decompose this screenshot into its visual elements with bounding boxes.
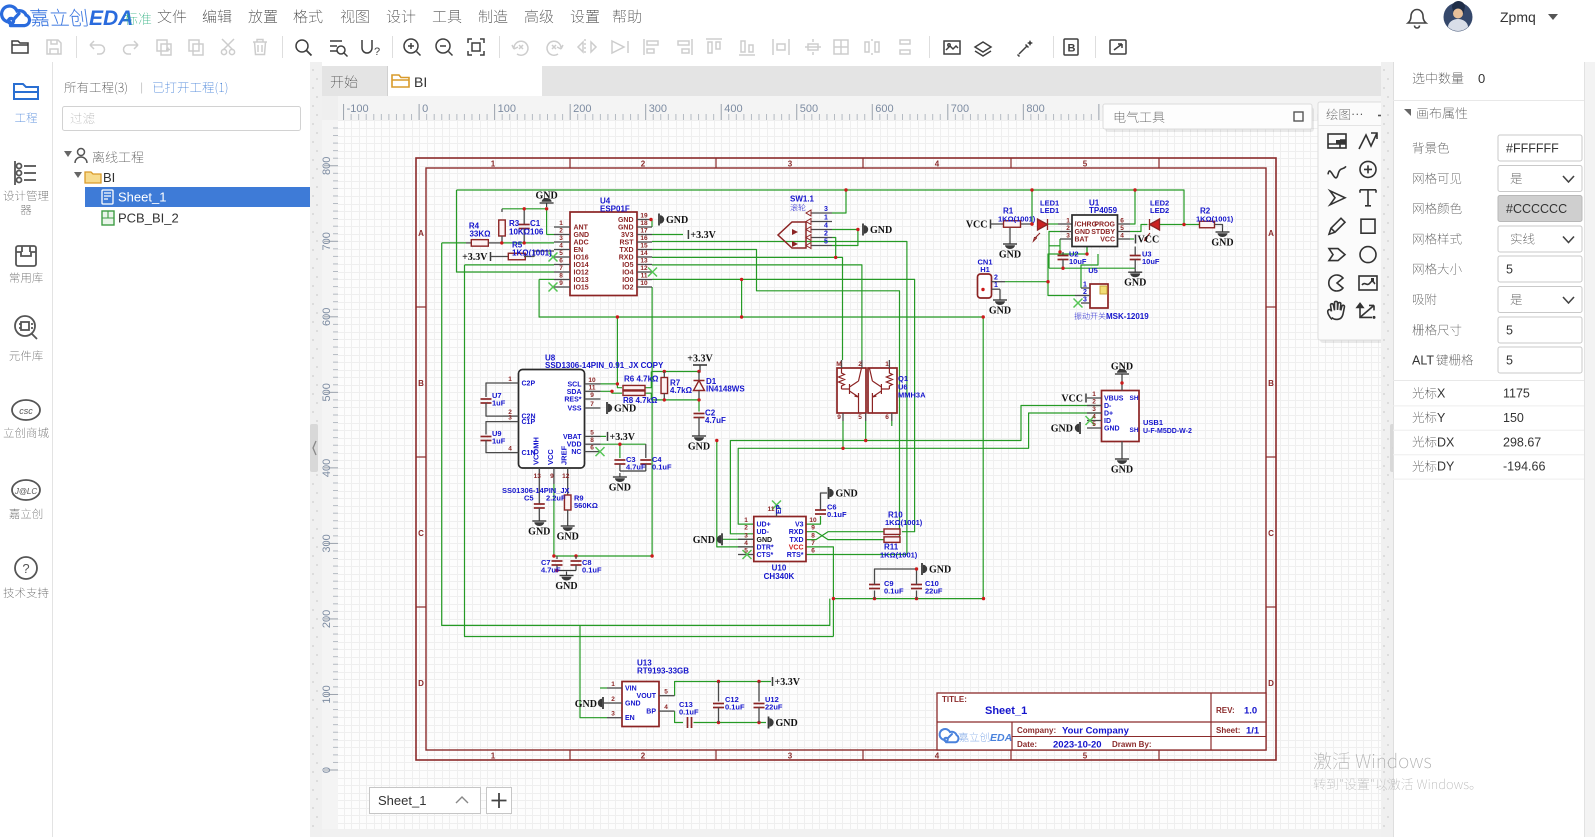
svg-text:SH: SH [1129, 395, 1138, 402]
svg-text:VCC: VCC [1061, 394, 1083, 405]
svg-text:700: 700 [951, 103, 969, 115]
svg-text:22uF: 22uF [925, 587, 943, 596]
svg-text:U5: U5 [1088, 266, 1098, 275]
svg-text:D+: D+ [1104, 411, 1113, 418]
svg-text:V3: V3 [795, 522, 804, 529]
svg-text:IO4: IO4 [622, 270, 633, 277]
svg-text:14: 14 [640, 250, 648, 257]
svg-text:6: 6 [559, 258, 563, 265]
svg-text:7: 7 [811, 540, 815, 547]
svg-text:+3.3V: +3.3V [775, 677, 801, 688]
svg-text:GND: GND [528, 527, 550, 538]
svg-text:SH: SH [1129, 427, 1138, 434]
svg-text:GND: GND [614, 404, 636, 415]
svg-text:GND: GND [618, 225, 634, 232]
svg-text:VCC: VCC [789, 544, 804, 551]
svg-text:GND: GND [1211, 238, 1233, 249]
svg-text:6: 6 [885, 414, 889, 421]
svg-text:2: 2 [744, 525, 748, 532]
svg-text:EP: EP [776, 504, 783, 514]
svg-text:RXD: RXD [619, 255, 634, 262]
svg-text:VDD: VDD [567, 442, 582, 449]
svg-text:1uF: 1uF [492, 399, 506, 408]
svg-text:4: 4 [1120, 233, 1124, 240]
svg-text:PCB_BI_2: PCB_BI_2 [118, 211, 179, 226]
svg-text:Your Company: Your Company [1062, 726, 1130, 737]
svg-text:MMH3A: MMH3A [898, 391, 926, 400]
svg-text:GND: GND [557, 532, 579, 543]
svg-text:5: 5 [590, 429, 594, 436]
svg-text:|: | [140, 80, 143, 94]
svg-text:4: 4 [824, 223, 828, 230]
svg-text:VIN: VIN [625, 686, 637, 693]
svg-text:4: 4 [508, 446, 512, 453]
svg-text:19: 19 [640, 213, 648, 220]
svg-text:-100: -100 [347, 103, 369, 115]
svg-text:GND: GND [999, 250, 1021, 261]
svg-text:17: 17 [640, 228, 648, 235]
svg-text:2023-10-20: 2023-10-20 [1053, 740, 1102, 751]
svg-text:VCC: VCC [966, 220, 988, 231]
svg-text:1KΩ(1001): 1KΩ(1001) [998, 215, 1036, 224]
svg-text:3: 3 [1092, 406, 1096, 413]
svg-text:5: 5 [1506, 324, 1513, 338]
svg-text:IO2: IO2 [622, 285, 633, 292]
svg-text:2: 2 [994, 275, 998, 282]
svg-text:?: ? [22, 561, 29, 576]
svg-text:5: 5 [1506, 354, 1513, 368]
svg-text:11: 11 [641, 273, 648, 280]
svg-text:PROG: PROG [1094, 222, 1115, 229]
svg-text:1KΩ(1001): 1KΩ(1001) [880, 551, 918, 560]
svg-text:Sheet_1: Sheet_1 [985, 705, 1027, 717]
svg-text:C1P: C1P [522, 419, 536, 426]
svg-text:10KΩ: 10KΩ [509, 228, 531, 237]
svg-text:GND: GND [666, 215, 688, 226]
svg-text:0: 0 [1478, 71, 1485, 86]
svg-text:106: 106 [530, 228, 544, 237]
svg-text:SDA: SDA [567, 389, 582, 396]
svg-text:csc: csc [19, 406, 33, 416]
svg-text:Sheet_1: Sheet_1 [118, 190, 166, 205]
svg-text:STDBY: STDBY [1091, 229, 1115, 236]
svg-text:USB1: USB1 [1143, 418, 1163, 427]
svg-text:1: 1 [994, 282, 998, 289]
svg-text:298.67: 298.67 [1503, 435, 1541, 449]
svg-text:560KΩ: 560KΩ [574, 501, 598, 510]
svg-text:MSK-12019: MSK-12019 [1106, 312, 1149, 321]
svg-text:2: 2 [858, 361, 862, 368]
svg-text:#CCCCCC: #CCCCCC [1506, 202, 1567, 216]
svg-text:GND: GND [1111, 362, 1133, 373]
svg-text:10uF: 10uF [1142, 257, 1160, 266]
svg-text:EDA: EDA [89, 7, 133, 30]
svg-text:EN: EN [574, 247, 584, 254]
svg-text:UD-: UD- [757, 529, 770, 536]
svg-text:12: 12 [562, 473, 570, 480]
svg-text:IO12: IO12 [574, 270, 589, 277]
svg-text:150: 150 [1503, 411, 1524, 425]
svg-text:0.1uF: 0.1uF [582, 566, 602, 575]
svg-text:3: 3 [788, 752, 793, 761]
svg-text:3: 3 [788, 160, 793, 169]
svg-text:M: M [836, 361, 841, 368]
svg-text:22uF: 22uF [765, 703, 783, 712]
svg-text:DX: DX [1437, 435, 1455, 449]
svg-text:VCC: VCC [1100, 237, 1115, 244]
svg-text:IO14: IO14 [574, 262, 589, 269]
svg-text:1: 1 [744, 517, 748, 524]
svg-text:3: 3 [508, 415, 512, 422]
svg-text:UD+: UD+ [757, 522, 771, 529]
svg-text:1: 1 [1092, 391, 1096, 398]
svg-text:DTR*: DTR* [757, 544, 774, 551]
svg-text:GND: GND [1051, 424, 1073, 435]
svg-text:3: 3 [611, 711, 615, 718]
svg-text:GND: GND [1104, 426, 1120, 433]
svg-text:Sheet:: Sheet: [1216, 726, 1240, 735]
svg-text:11: 11 [589, 384, 596, 391]
svg-text:4: 4 [559, 243, 563, 250]
svg-text:12: 12 [640, 265, 648, 272]
svg-text:600: 600 [321, 308, 333, 326]
svg-text:400: 400 [724, 103, 742, 115]
svg-text:VBUS: VBUS [1104, 396, 1124, 403]
svg-text:0.1uF: 0.1uF [679, 708, 699, 717]
svg-text:#FFFFFF: #FFFFFF [1506, 142, 1559, 156]
svg-text:RTS*: RTS* [787, 552, 804, 559]
svg-text:3: 3 [559, 235, 563, 242]
svg-text:Date:: Date: [1017, 740, 1037, 749]
svg-text:LED2: LED2 [1150, 206, 1169, 215]
svg-text:16: 16 [640, 235, 648, 242]
svg-text:J@LC: J@LC [14, 487, 38, 496]
svg-text:GND: GND [757, 537, 773, 544]
svg-text:10: 10 [809, 517, 817, 524]
svg-text:4: 4 [935, 752, 940, 761]
svg-text:8: 8 [559, 273, 563, 280]
svg-text:100: 100 [498, 103, 516, 115]
svg-text:10: 10 [640, 280, 648, 287]
svg-text:GND: GND [989, 306, 1011, 317]
svg-text:R6 4.7kΩ: R6 4.7kΩ [624, 375, 659, 384]
svg-text:+3.3V: +3.3V [687, 354, 713, 365]
svg-text:C5: C5 [524, 494, 534, 503]
svg-text:1: 1 [885, 361, 889, 368]
svg-text:9: 9 [559, 280, 563, 287]
svg-text:1KΩ(1001): 1KΩ(1001) [512, 249, 552, 258]
svg-text:4.7kΩ: 4.7kΩ [670, 386, 693, 395]
svg-text:+3.3V: +3.3V [462, 252, 488, 263]
svg-text:3: 3 [744, 532, 748, 539]
svg-text:1175: 1175 [1503, 387, 1530, 401]
svg-text:EN: EN [625, 715, 635, 722]
svg-text:B: B [1068, 43, 1076, 55]
svg-text:LED1: LED1 [1040, 206, 1059, 215]
svg-text:VCC: VCC [1138, 235, 1160, 246]
svg-text:ADC: ADC [574, 240, 589, 247]
svg-text:1uF: 1uF [492, 437, 506, 446]
svg-text:4: 4 [1092, 414, 1096, 421]
svg-text:?: ? [374, 46, 380, 58]
svg-text:GND: GND [693, 535, 715, 546]
svg-text:Drawn By:: Drawn By: [1112, 740, 1152, 749]
svg-text:7: 7 [590, 401, 594, 408]
svg-text:8: 8 [811, 532, 815, 539]
svg-text:5: 5 [744, 548, 748, 555]
svg-text:GND: GND [574, 232, 590, 239]
svg-text:800: 800 [1026, 103, 1044, 115]
svg-text:NC: NC [571, 449, 581, 456]
svg-text:0.1uF: 0.1uF [652, 463, 672, 472]
svg-text:4: 4 [664, 704, 668, 711]
svg-text:REV:: REV: [1216, 706, 1235, 715]
svg-text:IO0: IO0 [622, 277, 633, 284]
svg-text:2: 2 [611, 696, 615, 703]
svg-text:10uF: 10uF [1069, 257, 1087, 266]
svg-text:4.7uF: 4.7uF [705, 416, 726, 425]
svg-text:5: 5 [559, 250, 563, 257]
svg-text:4.7uF: 4.7uF [626, 463, 646, 472]
svg-text:GND: GND [609, 483, 631, 494]
svg-text:TXD: TXD [790, 537, 804, 544]
svg-text:9: 9 [590, 392, 594, 399]
svg-text:GND: GND [575, 699, 597, 710]
svg-text:5: 5 [1506, 263, 1513, 277]
svg-text:6: 6 [1120, 218, 1124, 225]
svg-text:RXD: RXD [789, 529, 804, 536]
svg-text:3: 3 [824, 206, 828, 213]
svg-text:SW1.1: SW1.1 [790, 195, 815, 204]
svg-text:C2P: C2P [522, 381, 536, 388]
svg-text:BI: BI [414, 74, 427, 90]
svg-text:600: 600 [875, 103, 893, 115]
svg-text:800: 800 [321, 157, 333, 175]
svg-text:1KΩ(1001): 1KΩ(1001) [1196, 215, 1234, 224]
svg-text:2.2uF: 2.2uF [546, 494, 566, 503]
svg-text:GND: GND [1124, 278, 1146, 289]
svg-text:400: 400 [321, 459, 333, 477]
svg-text:5: 5 [1120, 225, 1124, 232]
svg-text:R8 4.7kΩ: R8 4.7kΩ [623, 396, 658, 405]
svg-text:4.7uF: 4.7uF [541, 566, 561, 575]
svg-text:Sheet_1: Sheet_1 [378, 793, 426, 808]
svg-text:RST: RST [620, 240, 635, 247]
svg-text:1: 1 [611, 681, 615, 688]
svg-text:EDA: EDA [990, 732, 1012, 744]
svg-text:BAT: BAT [1075, 237, 1090, 244]
svg-text:6: 6 [590, 445, 594, 452]
svg-text:700: 700 [321, 232, 333, 250]
svg-text:2: 2 [1066, 225, 1070, 232]
svg-text:ESP01F: ESP01F [600, 205, 630, 214]
svg-text:1: 1 [559, 220, 563, 227]
svg-text:SCL: SCL [568, 381, 583, 388]
svg-text:2: 2 [1092, 399, 1096, 406]
svg-text:GND: GND [870, 225, 892, 236]
svg-text:BP: BP [646, 709, 656, 716]
svg-text:2: 2 [1083, 289, 1087, 296]
svg-text:0.1uF: 0.1uF [884, 587, 904, 596]
svg-text:D: D [1268, 679, 1274, 688]
svg-text:ALT: ALT [1412, 354, 1434, 368]
svg-text:IO16: IO16 [574, 255, 589, 262]
svg-text:2: 2 [824, 231, 828, 238]
svg-text:5: 5 [858, 414, 862, 421]
svg-text:7: 7 [559, 265, 563, 272]
svg-text:VCOMH: VCOMH [531, 437, 540, 465]
svg-text:GND: GND [1075, 229, 1091, 236]
svg-text:500: 500 [321, 383, 333, 401]
svg-text:ANT: ANT [574, 225, 589, 232]
svg-text:5: 5 [824, 239, 828, 246]
svg-text:13: 13 [640, 258, 648, 265]
svg-text:4: 4 [744, 540, 748, 547]
svg-text:1: 1 [491, 752, 496, 761]
svg-text:9: 9 [550, 473, 554, 480]
svg-text:1KΩ(1001): 1KΩ(1001) [885, 518, 923, 527]
svg-text:CTS*: CTS* [757, 552, 774, 559]
svg-text:U-F-M5DD-W-2: U-F-M5DD-W-2 [1143, 428, 1192, 435]
svg-text:B: B [418, 379, 424, 388]
svg-text:3: 3 [1083, 297, 1087, 304]
svg-text:500: 500 [800, 103, 818, 115]
svg-text:VOUT: VOUT [637, 693, 657, 700]
svg-text:GND: GND [555, 581, 577, 592]
svg-text:0: 0 [422, 103, 428, 115]
svg-text:TITLE:: TITLE: [942, 695, 967, 704]
svg-text:GND: GND [625, 701, 641, 708]
svg-text:1: 1 [1083, 282, 1087, 289]
svg-text:5: 5 [664, 689, 668, 696]
svg-text:GND: GND [836, 489, 858, 500]
svg-text:+3.3V: +3.3V [690, 230, 716, 241]
svg-text:VSS: VSS [567, 406, 581, 413]
svg-text:SSD1306-14PIN_0.91_JX COPY: SSD1306-14PIN_0.91_JX COPY [545, 361, 664, 370]
svg-text:BI: BI [103, 170, 115, 185]
svg-text:+3.3V: +3.3V [610, 432, 636, 443]
svg-text:H1: H1 [980, 265, 990, 274]
svg-text:9: 9 [837, 414, 841, 421]
svg-text:3V3: 3V3 [621, 232, 634, 239]
svg-text:9: 9 [811, 525, 815, 532]
svg-text:IN4148WS: IN4148WS [706, 385, 745, 394]
svg-text:5: 5 [1083, 752, 1088, 761]
svg-text:C: C [418, 529, 424, 538]
svg-text:100: 100 [321, 685, 333, 703]
svg-text:33KΩ: 33KΩ [469, 230, 491, 239]
svg-text:GND: GND [929, 565, 951, 576]
svg-text:13: 13 [534, 473, 542, 480]
svg-text:3: 3 [1066, 233, 1070, 240]
svg-text:IO15: IO15 [574, 285, 589, 292]
svg-text:Company:: Company: [1017, 726, 1056, 735]
svg-text:1: 1 [824, 215, 828, 222]
svg-text:200: 200 [573, 103, 591, 115]
svg-text:300: 300 [649, 103, 667, 115]
svg-text:1/1: 1/1 [1246, 726, 1260, 737]
svg-text:A: A [418, 229, 424, 238]
svg-text:4: 4 [935, 160, 940, 169]
svg-text:A: A [1268, 229, 1274, 238]
svg-text:TP4059: TP4059 [1089, 206, 1118, 215]
svg-text:C: C [1268, 529, 1274, 538]
svg-text:1: 1 [508, 376, 512, 383]
svg-text:2: 2 [641, 160, 646, 169]
svg-text:1.0: 1.0 [1244, 706, 1257, 717]
svg-text:2: 2 [559, 228, 563, 235]
svg-text:ID: ID [1104, 418, 1111, 425]
svg-text:B: B [1268, 379, 1274, 388]
svg-text:Y: Y [1437, 411, 1446, 425]
svg-text:0.1uF: 0.1uF [827, 510, 847, 519]
svg-text:6: 6 [811, 548, 815, 555]
svg-text:RES*: RES* [564, 397, 581, 404]
svg-text:JREF: JREF [560, 445, 569, 465]
svg-text:5: 5 [1092, 421, 1096, 428]
svg-text:GND: GND [618, 217, 634, 224]
svg-text:0: 0 [321, 767, 333, 773]
svg-text:10: 10 [588, 377, 596, 384]
svg-text:200: 200 [321, 610, 333, 628]
svg-text:RT9193-33GB: RT9193-33GB [637, 667, 689, 676]
svg-text:5: 5 [1083, 160, 1088, 169]
svg-text:IO13: IO13 [574, 277, 589, 284]
svg-text:D: D [418, 679, 424, 688]
svg-text:Zpmq: Zpmq [1500, 9, 1536, 25]
svg-text:GND: GND [1111, 465, 1133, 476]
svg-text:300: 300 [321, 534, 333, 552]
svg-text:CH340K: CH340K [764, 572, 795, 581]
svg-text:GND: GND [776, 718, 798, 729]
svg-text:8: 8 [590, 437, 594, 444]
svg-text:IO5: IO5 [622, 262, 633, 269]
svg-text:TXD: TXD [620, 247, 634, 254]
svg-text:1: 1 [491, 160, 496, 169]
svg-text:0.1uF: 0.1uF [725, 703, 745, 712]
svg-text:D-: D- [1104, 403, 1112, 410]
svg-text:GND: GND [688, 442, 710, 453]
svg-text:2: 2 [641, 752, 646, 761]
svg-text:1: 1 [1066, 218, 1070, 225]
svg-text:15: 15 [640, 243, 648, 250]
svg-text:VBAT: VBAT [563, 434, 582, 441]
svg-text:VCC: VCC [546, 449, 555, 465]
svg-text:11: 11 [768, 506, 775, 513]
svg-text:X: X [1437, 387, 1446, 401]
svg-text:DY: DY [1437, 460, 1455, 474]
svg-text:-194.66: -194.66 [1503, 460, 1545, 474]
svg-text:18: 18 [640, 220, 648, 227]
svg-text:GND: GND [535, 191, 557, 202]
